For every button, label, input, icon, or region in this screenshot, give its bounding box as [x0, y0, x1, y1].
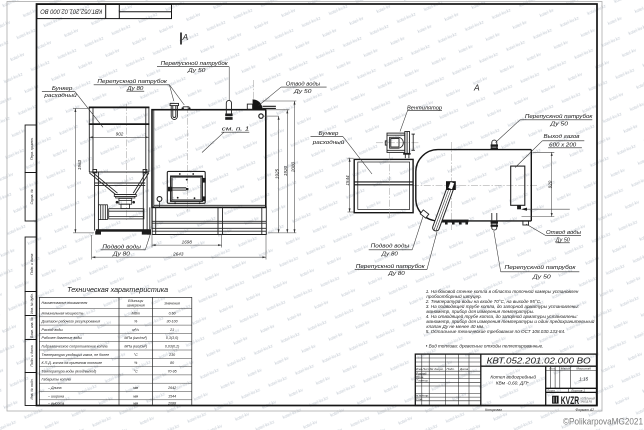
svg-text:см. п. 1: см. п. 1 [222, 127, 250, 133]
svg-text:Техническая характеристика: Техническая характеристика [67, 285, 168, 294]
svg-text:Формат А2: Формат А2 [576, 408, 595, 412]
svg-text:Бункер: Бункер [319, 131, 339, 137]
svg-text:80: 80 [170, 361, 174, 365]
svg-text:Дата: Дата [459, 367, 468, 371]
svg-text:Копировал: Копировал [485, 408, 502, 412]
svg-text:1963: 1963 [77, 159, 82, 170]
svg-text:5. Остальные технические требо: 5. Остальные технические требования по О… [426, 329, 566, 334]
svg-text:1544: 1544 [345, 175, 350, 186]
svg-text:Температура уходящих газов, не: Температура уходящих газов, не более [42, 353, 110, 357]
svg-text:Ду 50: Ду 50 [532, 275, 552, 281]
svg-text:мм: мм [133, 394, 138, 398]
svg-text:№ докум.: № докум. [430, 367, 444, 371]
svg-text:Отвод воды: Отвод воды [286, 81, 320, 87]
svg-text:• Вид топлива: древесные отход: • Вид топлива: древесные отходы пеллетир… [426, 344, 544, 349]
svg-text:Листов 1: Листов 1 [570, 389, 585, 393]
svg-text:А: А [473, 82, 480, 92]
svg-text:расходный: расходный [43, 92, 76, 99]
svg-text:м³/ч: м³/ч [132, 328, 139, 332]
svg-text:– Длина: – Длина [47, 386, 62, 390]
svg-text:Габариты котла: Габариты котла [42, 378, 71, 382]
svg-text:Отвод воды: Отвод воды [546, 230, 581, 236]
svg-text:Ду 80: Ду 80 [112, 252, 131, 258]
svg-text:МПа (кгс/см²): МПа (кгс/см²) [124, 345, 147, 349]
svg-text:расходный: расходный [312, 139, 345, 146]
svg-text:70-95: 70-95 [167, 369, 176, 373]
svg-text:Перепускной патрубок: Перепускной патрубок [161, 60, 228, 67]
svg-text:А: А [182, 32, 189, 42]
svg-text:КОТЕЛЬНЫЙ: КОТЕЛЬНЫЙ [581, 397, 596, 400]
svg-text:Ду 50: Ду 50 [549, 121, 569, 127]
svg-text:1925: 1925 [275, 168, 280, 179]
svg-text:Масштаб: Масштаб [576, 367, 591, 371]
svg-text:1920: 1920 [283, 165, 288, 176]
svg-text:Рабочее давление воды: Рабочее давление воды [42, 336, 83, 340]
svg-text:Перепускной патрубок: Перепускной патрубок [525, 113, 593, 120]
svg-text:2642: 2642 [167, 386, 176, 390]
svg-text:Ду 50: Ду 50 [187, 68, 207, 74]
svg-text:Масса: Масса [561, 367, 570, 371]
svg-text:Подп. и дата: Подп. и дата [30, 345, 34, 366]
svg-text:Температура воды (вход/выход): Температура воды (вход/выход) [42, 369, 97, 373]
svg-text:Ду 50: Ду 50 [293, 89, 312, 95]
svg-text:©PolikarpovaMG2021: ©PolikarpovaMG2021 [563, 417, 643, 427]
svg-text:Гидравлическое сопротивление к: Гидравлическое сопротивление котла [42, 345, 108, 349]
svg-text:30-100: 30-100 [166, 320, 177, 324]
svg-text:Подвод воды: Подвод воды [102, 244, 141, 250]
svg-text:2643: 2643 [172, 252, 184, 257]
svg-text:– ширина: – ширина [47, 394, 64, 398]
svg-text:ЗАВОД Р.В: ЗАВОД Р.В [581, 400, 593, 403]
svg-text:мм: мм [133, 401, 138, 405]
svg-text:Инв. № дубл.: Инв. № дубл. [30, 293, 34, 314]
svg-text:Т.контр.: Т.контр. [416, 379, 429, 383]
svg-text:Диапазон рабочего регулировани: Диапазон рабочего регулирования [41, 320, 101, 324]
svg-text:KVZR: KVZR [561, 395, 579, 407]
svg-text:Справ. №: Справ. № [30, 189, 34, 205]
svg-text:Подп. и дата: Подп. и дата [30, 253, 34, 274]
svg-text:1:15: 1:15 [579, 377, 588, 382]
svg-text:920: 920 [547, 180, 552, 188]
svg-text:2080: 2080 [290, 161, 295, 173]
svg-text:МПа (кгс/см²): МПа (кгс/см²) [124, 336, 147, 340]
svg-text:Расход воды: Расход воды [42, 328, 64, 332]
svg-text:МВт: МВт [132, 311, 140, 315]
svg-text:КВТ.052.201.02.000 ВО: КВТ.052.201.02.000 ВО [487, 356, 591, 366]
svg-text:Наименование показателя: Наименование показателя [42, 301, 88, 305]
svg-text:КВм -0,60. ДП*: КВм -0,60. ДП* [496, 380, 529, 386]
svg-text:Ду 80: Ду 80 [381, 252, 399, 258]
svg-text:– высота: – высота [47, 401, 64, 405]
svg-text:измерения: измерения [127, 304, 145, 308]
svg-text:мм: мм [133, 386, 138, 390]
svg-text:1698: 1698 [182, 240, 193, 245]
svg-text:21: 21 [169, 328, 174, 332]
svg-text:КВТ.052.201.02.000 ВО: КВТ.052.201.02.000 ВО [40, 7, 102, 13]
svg-text:Перепускной патрубок: Перепускной патрубок [505, 264, 576, 271]
svg-text:Ду 80: Ду 80 [387, 271, 405, 277]
svg-text:Инв. № подл.: Инв. № подл. [30, 378, 34, 399]
svg-text:К.П.Д. котла на приемном топли: К.П.Д. котла на приемном топливе [42, 361, 102, 365]
svg-text:Номинальная мощность: Номинальная мощность [42, 311, 84, 315]
svg-text:0,03(0,2): 0,03(0,2) [165, 345, 179, 349]
svg-text:Значения: Значения [164, 302, 180, 306]
svg-text:Перепускной патрубок: Перепускной патрубок [356, 263, 425, 270]
svg-text:0,60: 0,60 [169, 311, 176, 315]
svg-text:Взам. инв. №: Взам. инв. № [30, 317, 34, 338]
svg-text:1544: 1544 [168, 394, 176, 398]
svg-text:Котел водогрейный: Котел водогрейный [490, 373, 536, 380]
svg-text:Единицы: Единицы [128, 299, 143, 303]
svg-text:Лит.: Лит. [548, 367, 556, 371]
svg-text:Подп.: Подп. [447, 367, 455, 371]
svg-text:230: 230 [168, 353, 175, 357]
svg-text:°С: °С [134, 369, 138, 373]
svg-text:Подвод воды: Подвод воды [371, 244, 410, 250]
svg-text:Выход газов: Выход газов [544, 134, 580, 140]
svg-text:Перепускной патрубок: Перепускной патрубок [97, 78, 167, 85]
svg-text:°С: °С [134, 353, 138, 357]
svg-text:Лист: Лист [546, 389, 555, 393]
svg-text:902: 902 [116, 132, 124, 137]
svg-text:2088: 2088 [167, 401, 176, 405]
svg-text:0,3(3,0): 0,3(3,0) [166, 336, 178, 340]
svg-text:Утв.: Утв. [416, 397, 423, 401]
svg-text:Перв. примен.: Перв. примен. [30, 137, 34, 160]
